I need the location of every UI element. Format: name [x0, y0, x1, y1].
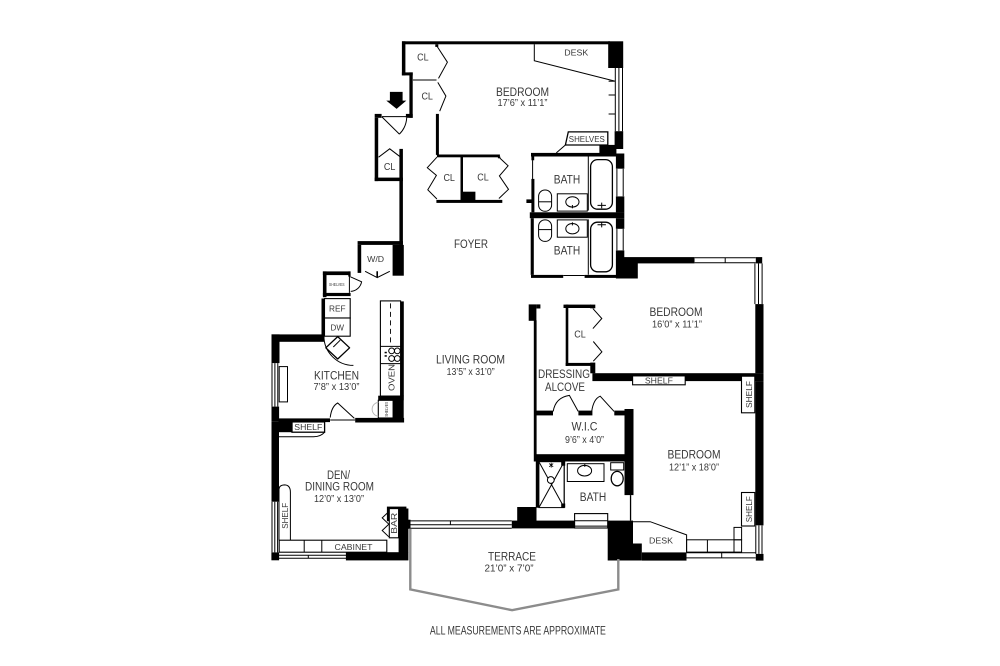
svg-text:SHELF: SHELF [744, 496, 754, 522]
svg-text:DESK: DESK [649, 536, 673, 546]
svg-text:13’5” x 31’0”: 13’5” x 31’0” [447, 367, 495, 378]
svg-text:21’0” x 7’0”: 21’0” x 7’0” [485, 564, 534, 575]
svg-text:SHELF: SHELF [744, 381, 754, 408]
svg-text:SHELVES: SHELVES [329, 282, 345, 287]
svg-text:16’0” x 11’1”: 16’0” x 11’1” [652, 320, 702, 331]
svg-text:17’6” x 11’1”: 17’6” x 11’1” [498, 98, 548, 109]
svg-text:DRESSING: DRESSING [538, 369, 590, 381]
svg-text:SHELF: SHELF [645, 376, 673, 386]
svg-text:CL: CL [477, 173, 489, 184]
svg-text:W/D: W/D [367, 254, 384, 264]
svg-text:CL: CL [443, 173, 455, 184]
svg-text:CL: CL [421, 92, 433, 103]
svg-text:CL: CL [384, 162, 396, 173]
svg-text:BATH: BATH [554, 246, 580, 258]
svg-text:BEDROOM: BEDROOM [496, 87, 549, 99]
svg-text:BEDROOM: BEDROOM [668, 450, 721, 462]
svg-text:SHELVES: SHELVES [384, 402, 389, 417]
svg-text:SHELVES: SHELVES [569, 134, 605, 144]
svg-text:CABINET: CABINET [335, 542, 374, 552]
svg-text:ALL MEASUREMENTS ARE APPROXIMA: ALL MEASUREMENTS ARE APPROXIMATE [430, 626, 606, 638]
svg-text:CL: CL [574, 330, 586, 341]
svg-text:OVEN: OVEN [387, 364, 397, 391]
svg-text:FOYER: FOYER [454, 239, 488, 251]
svg-text:12’0” x 13’0”: 12’0” x 13’0” [314, 494, 364, 505]
svg-text:ALCOVE: ALCOVE [545, 382, 585, 394]
svg-text:LIVING ROOM: LIVING ROOM [436, 355, 505, 367]
svg-text:BEDROOM: BEDROOM [650, 307, 703, 319]
svg-text:KITCHEN: KITCHEN [314, 371, 359, 383]
svg-text:9’6” x 4’0”: 9’6” x 4’0” [565, 435, 604, 446]
svg-text:BATH: BATH [580, 492, 606, 504]
svg-text:12’1” x 18’0”: 12’1” x 18’0” [669, 463, 719, 474]
svg-text:7’8” x 13’0”: 7’8” x 13’0” [314, 382, 360, 393]
svg-text:SHELF: SHELF [294, 422, 322, 432]
svg-text:BAR: BAR [389, 513, 399, 534]
svg-text:CL: CL [417, 52, 429, 63]
svg-text:TERRACE: TERRACE [488, 552, 536, 564]
svg-text:DW: DW [331, 322, 345, 332]
svg-text:DESK: DESK [564, 48, 588, 58]
svg-text:SHELF: SHELF [280, 503, 290, 529]
svg-text:REF: REF [329, 304, 346, 314]
svg-text:DINING ROOM: DINING ROOM [305, 482, 374, 494]
svg-text:DEN/: DEN/ [327, 470, 351, 482]
svg-text:BATH: BATH [554, 175, 580, 187]
svg-text:W.I.C: W.I.C [572, 422, 598, 434]
